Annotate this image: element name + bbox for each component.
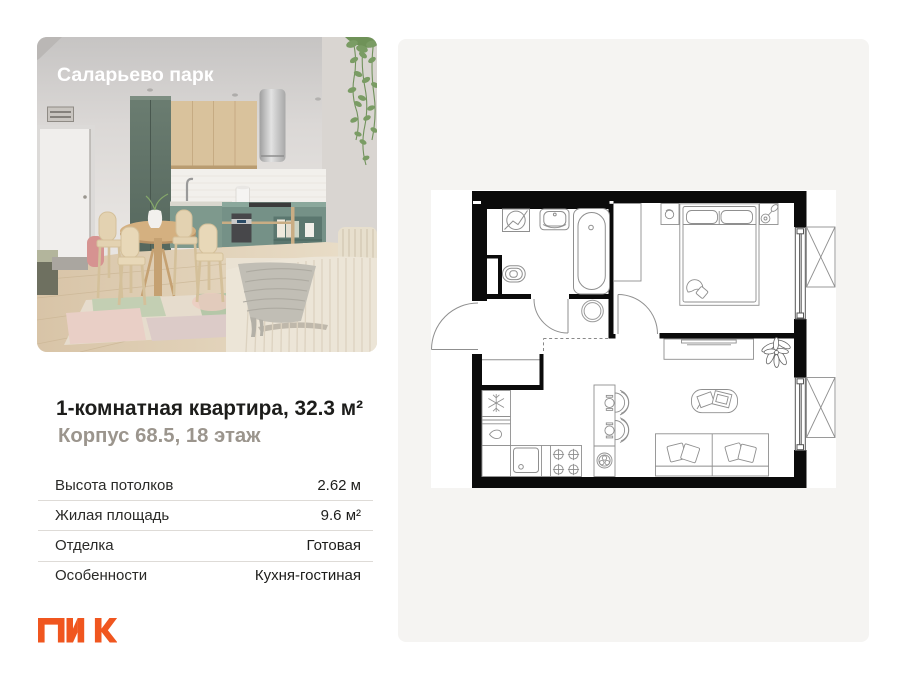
svg-text:Саларьево парк: Саларьево парк [57, 64, 214, 86]
